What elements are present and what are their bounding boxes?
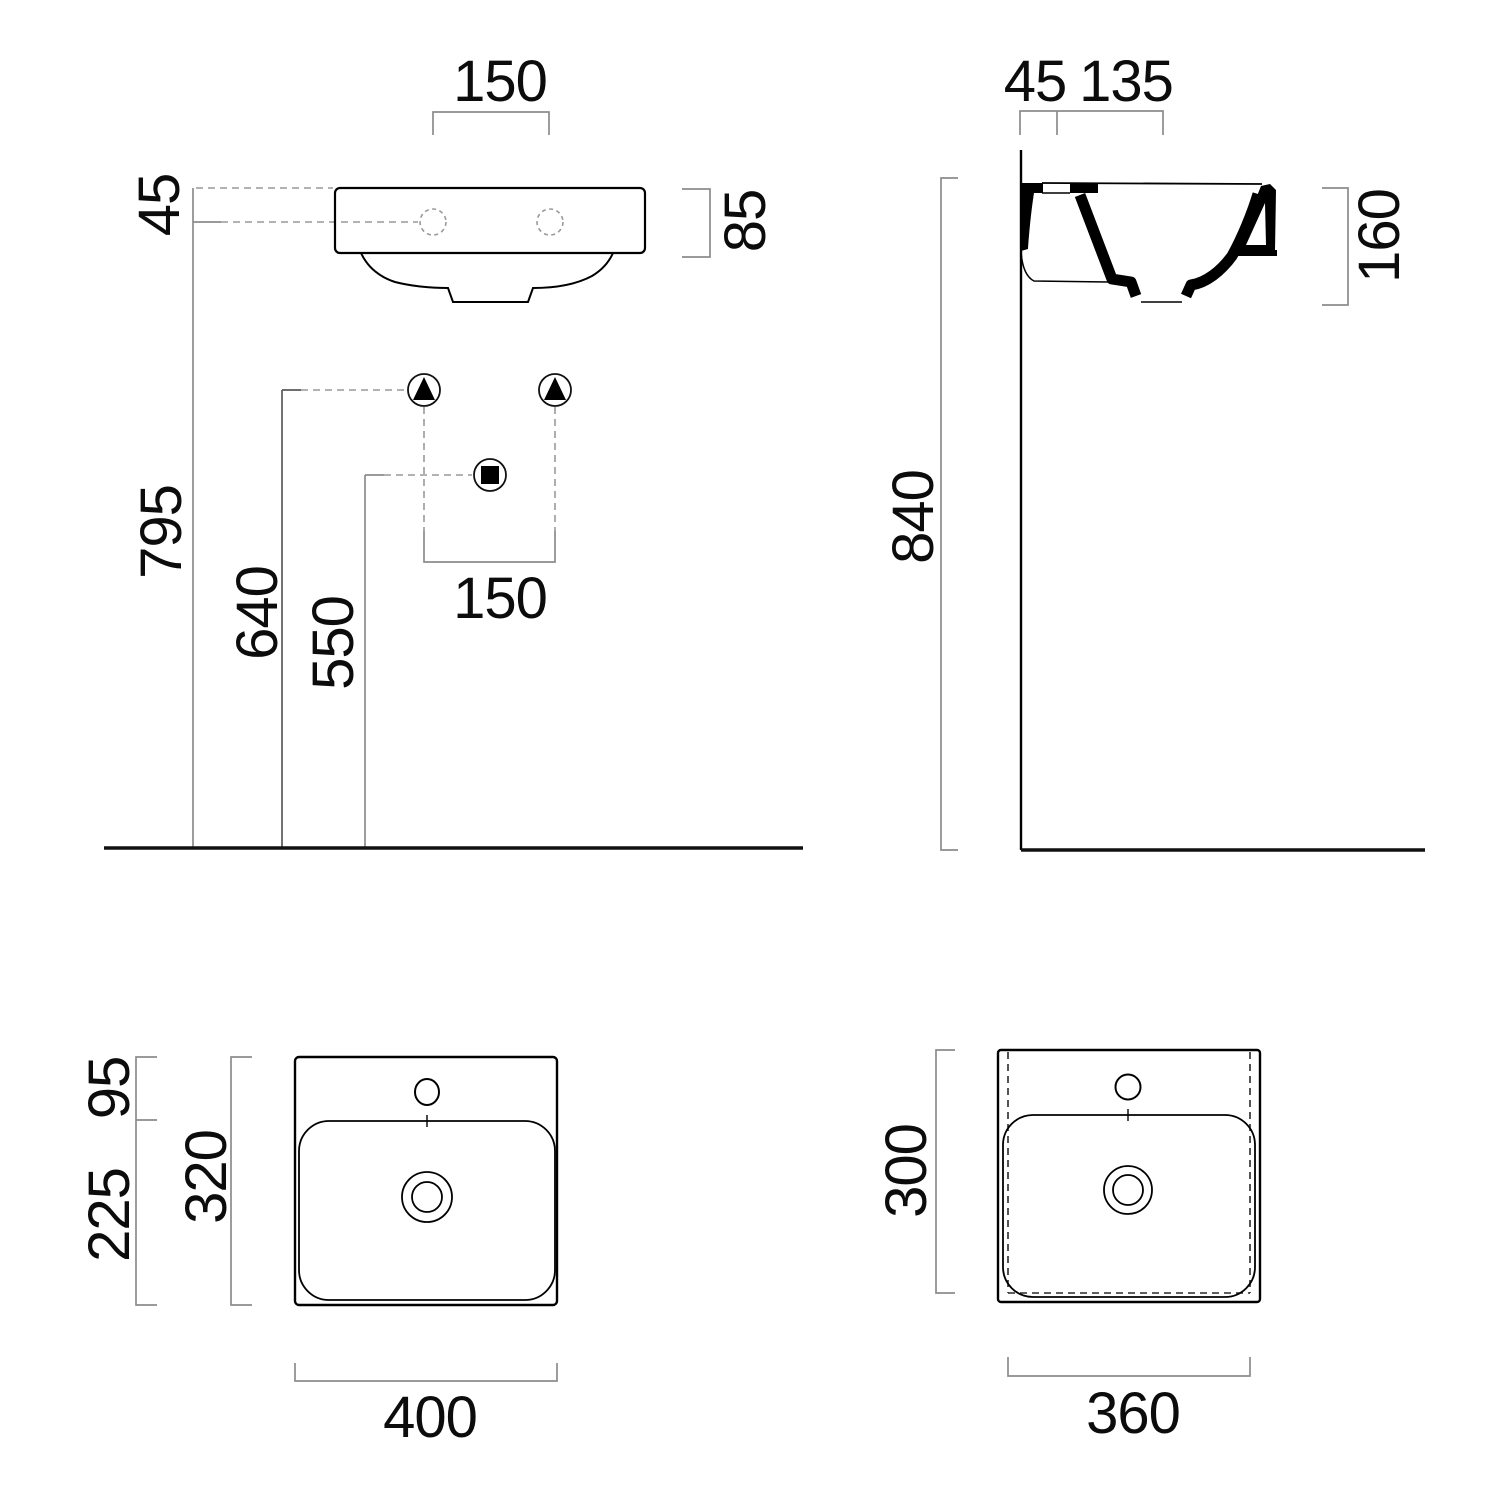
dim-label-320: 320 (174, 1130, 239, 1224)
front-view: 150 45 85 795 640 550 150 (104, 49, 803, 848)
dim-label-150-bottom: 150 (453, 566, 547, 631)
bracket-85 (682, 189, 710, 257)
plan-tap-hole-icon (415, 1079, 439, 1105)
dim-label-135: 135 (1079, 49, 1173, 114)
underside-drain-inner-icon (1113, 1175, 1143, 1205)
section-left-wall (1021, 183, 1043, 251)
waste-outlet-icon (474, 459, 506, 491)
tap-hole-right-icon (537, 209, 563, 235)
basin-bowl-underside (361, 253, 613, 302)
tap-hole-left-icon (420, 209, 446, 235)
bracket-160 (1322, 188, 1348, 305)
dim-label-300: 300 (874, 1124, 939, 1218)
bracket-150-top (433, 112, 549, 135)
plan-outline (295, 1057, 557, 1305)
technical-drawing-canvas: 150 45 85 795 640 550 150 45 (0, 0, 1500, 1500)
bracket-400 (295, 1363, 557, 1381)
fixing-bolt-left-icon (408, 374, 440, 406)
underside-view: 300 360 (874, 1050, 1260, 1446)
plan-bowl-outline (299, 1121, 555, 1300)
underside-tap-hole-icon (1116, 1075, 1141, 1100)
dim-label-95: 95 (77, 1057, 142, 1120)
dim-label-640: 640 (225, 566, 290, 660)
dim-label-400: 400 (383, 1385, 477, 1450)
plan-drain-outer-icon (402, 1172, 452, 1222)
underside-bowl-outline (1003, 1115, 1255, 1297)
side-view: 45 135 840 160 (881, 49, 1425, 850)
fixing-bolt-right-icon (539, 374, 571, 406)
underside-drain-outer-icon (1104, 1166, 1152, 1214)
dim-label-45: 45 (127, 174, 192, 237)
dim-label-840: 840 (881, 470, 946, 564)
dim-label-45-side: 45 (1004, 49, 1067, 114)
section-bowl-left (1080, 195, 1136, 296)
underside-outline (998, 1050, 1260, 1302)
basin-front-outline (335, 188, 645, 253)
dim-label-360: 360 (1086, 1381, 1180, 1446)
washbasin-drawing: 150 45 85 795 640 550 150 45 (0, 0, 1500, 1500)
plan-drain-inner-icon (412, 1182, 442, 1212)
bracket-150-bottom (424, 531, 555, 562)
section-rim (1070, 183, 1098, 193)
dim-label-85: 85 (713, 190, 778, 253)
dim-label-225: 225 (77, 1168, 142, 1262)
dim-label-160: 160 (1347, 189, 1412, 283)
dim-label-150-top: 150 (453, 49, 547, 114)
dim-label-550: 550 (301, 596, 366, 690)
section-outer-bottom (1021, 251, 1108, 282)
bracket-45-135 (1020, 111, 1163, 135)
basin-section (1021, 183, 1277, 302)
plan-view: 95 225 320 400 (77, 1057, 557, 1450)
bracket-360 (1008, 1357, 1250, 1376)
dim-label-795: 795 (129, 485, 194, 579)
